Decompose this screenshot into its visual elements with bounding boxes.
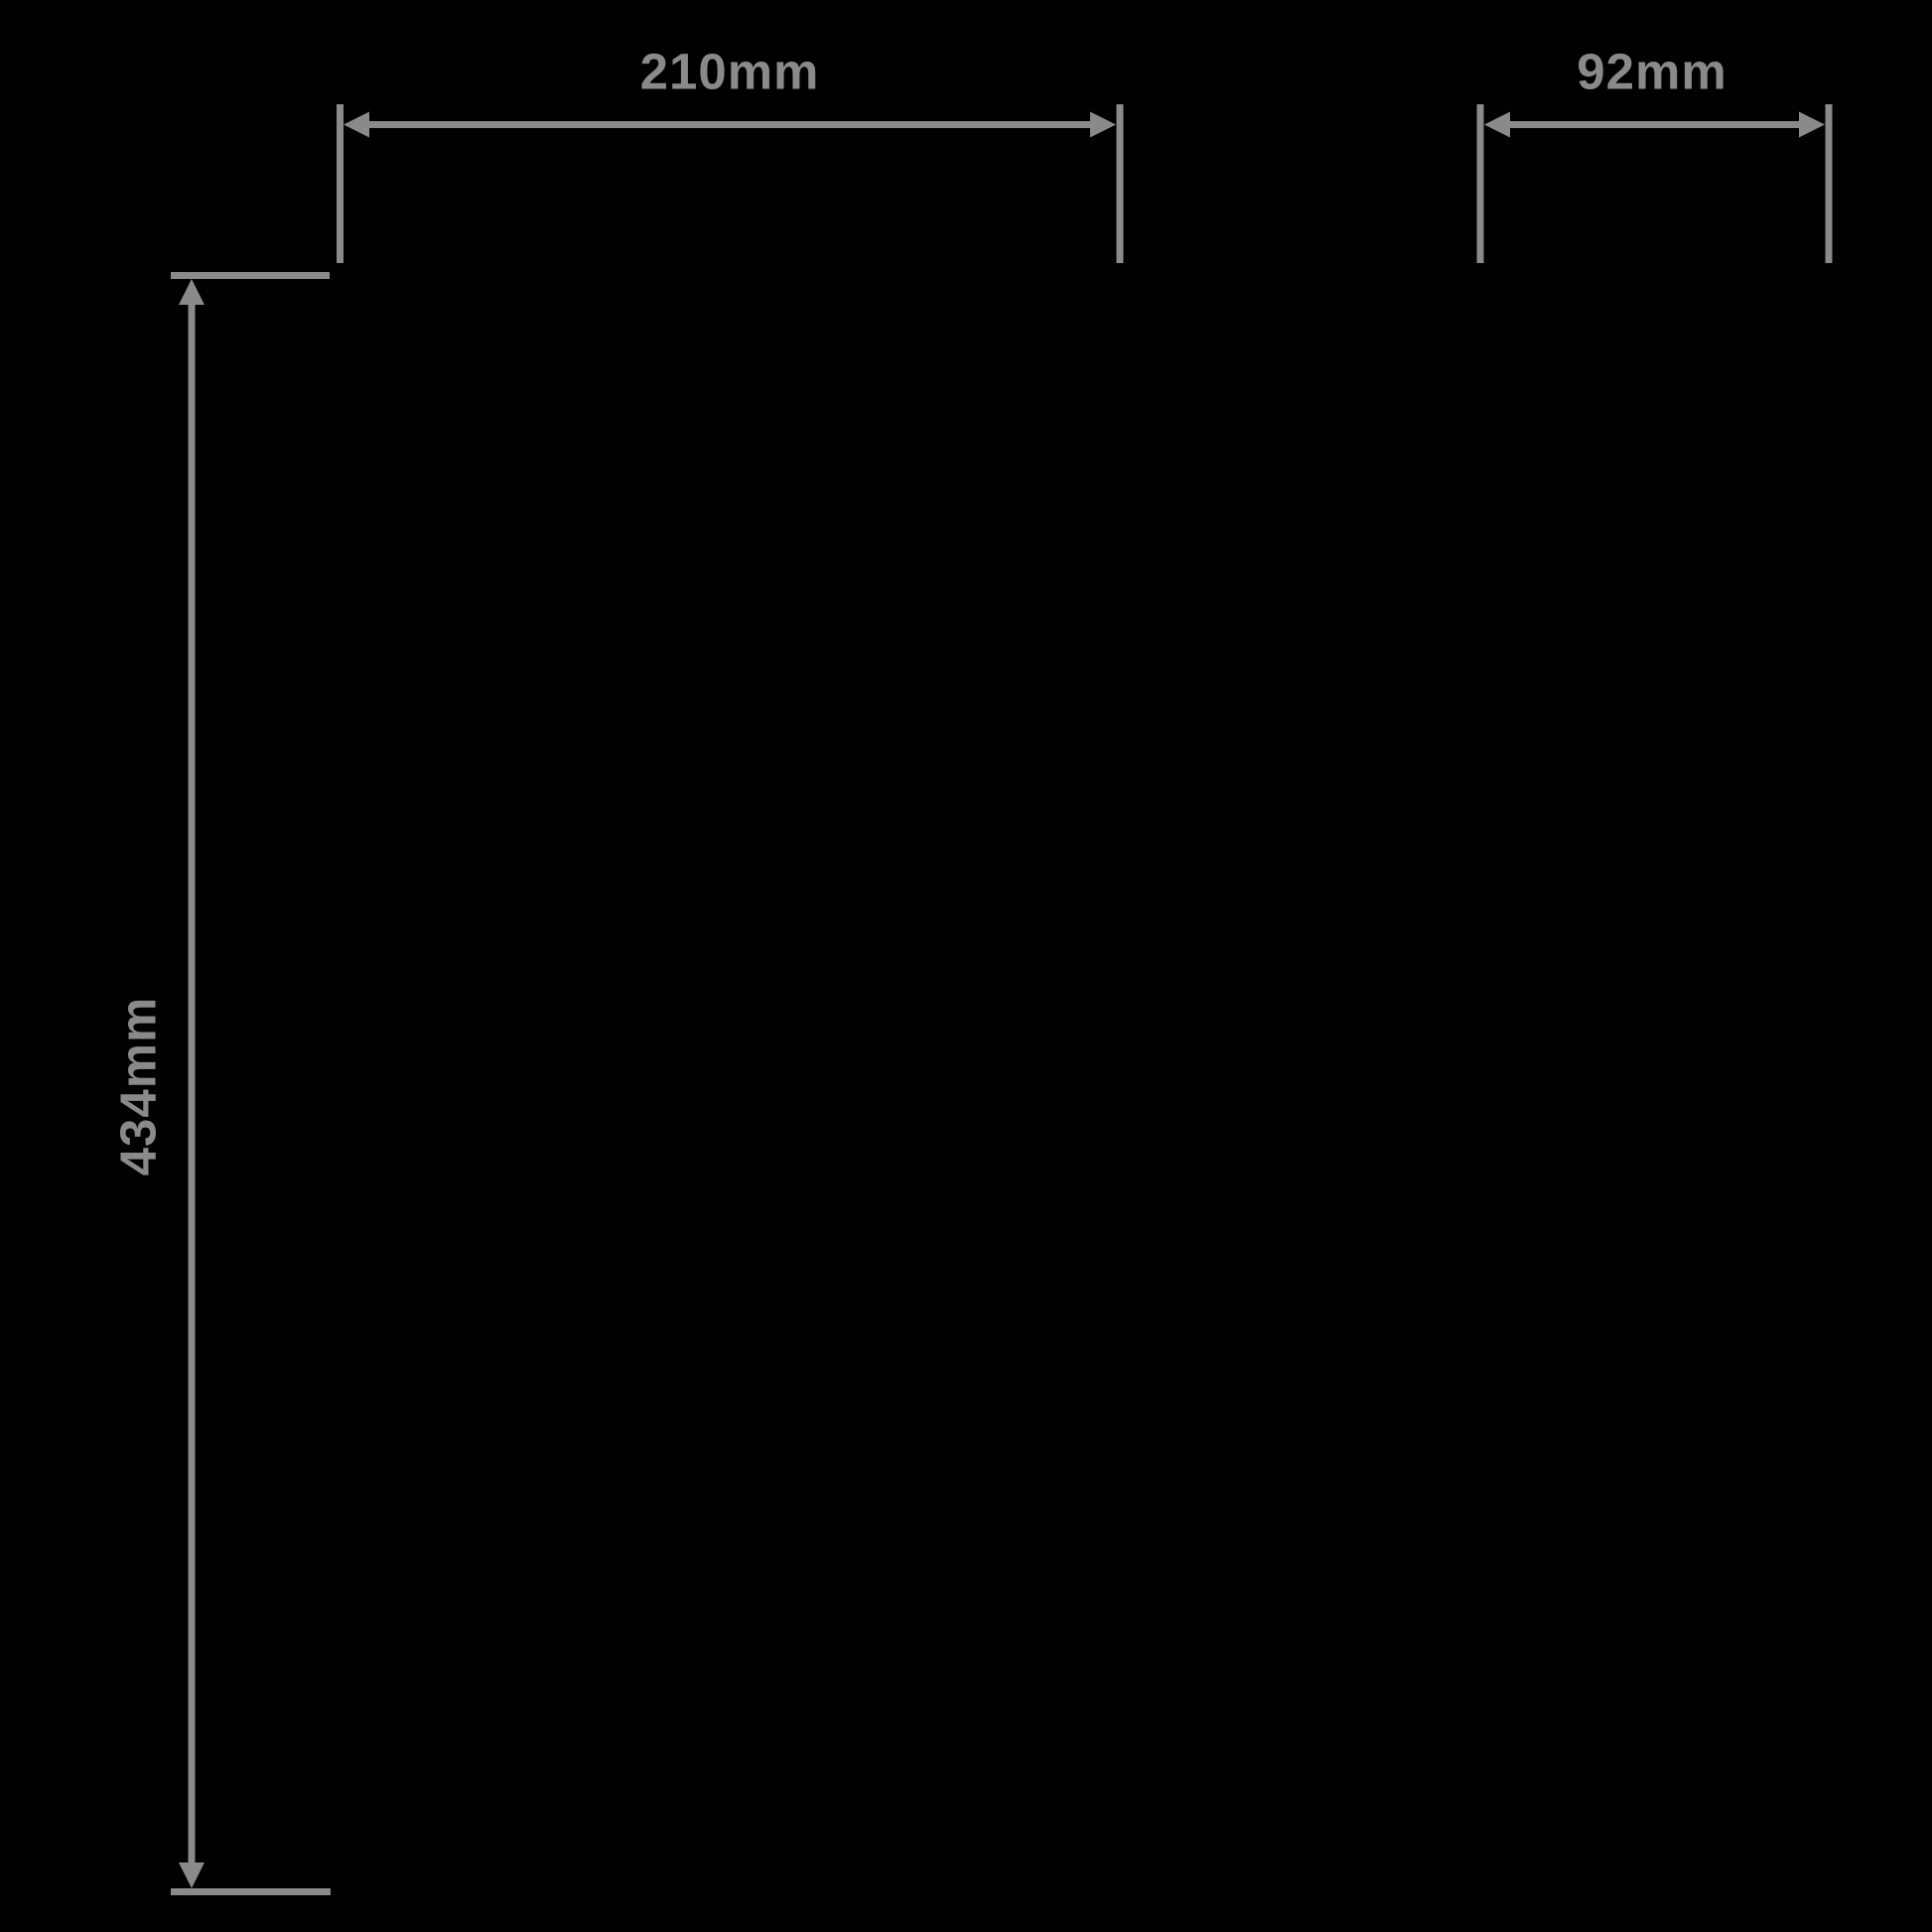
height-arrowhead-bottom-icon — [179, 1863, 205, 1888]
dimension-diagram: 210mm 92mm 434mm — [0, 0, 1932, 1932]
width-dimension-label: 210mm — [640, 43, 820, 101]
height-dimension-label: 434mm — [109, 997, 168, 1176]
depth-dimension-label: 92mm — [1577, 43, 1726, 101]
width-arrowhead-right-icon — [1090, 112, 1116, 138]
depth-arrowhead-right-icon — [1799, 112, 1825, 138]
dimension-lines-layer — [0, 0, 1932, 1932]
height-arrowhead-top-icon — [179, 279, 205, 305]
width-arrowhead-left-icon — [344, 112, 369, 138]
depth-arrowhead-left-icon — [1484, 112, 1510, 138]
